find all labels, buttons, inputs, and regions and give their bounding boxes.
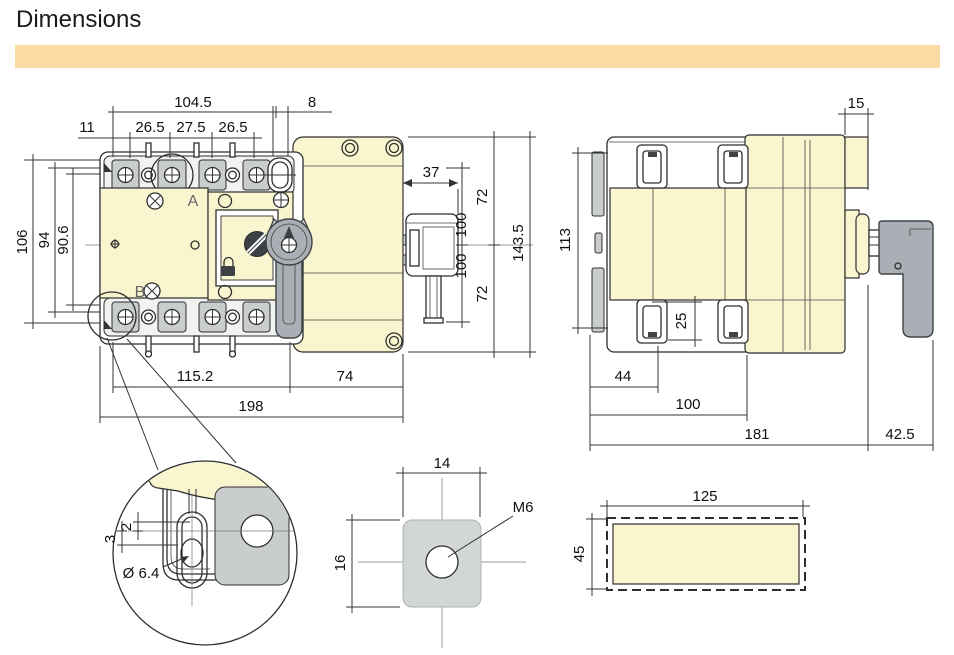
svg-text:100: 100 bbox=[675, 396, 700, 413]
side-band bbox=[610, 188, 746, 300]
terminal-b-label: B bbox=[135, 284, 146, 301]
front-plate: A B bbox=[100, 188, 208, 301]
svg-text:27.5: 27.5 bbox=[176, 119, 205, 136]
svg-text:Ø 6.4: Ø 6.4 bbox=[123, 565, 160, 582]
svg-text:37: 37 bbox=[423, 164, 440, 181]
svg-text:26.5: 26.5 bbox=[218, 119, 247, 136]
svg-text:104.5: 104.5 bbox=[174, 94, 212, 111]
switch-handle-side bbox=[869, 221, 933, 337]
dim-cover-height: 45 bbox=[571, 513, 606, 596]
svg-text:143.5: 143.5 bbox=[510, 224, 527, 262]
svg-text:25: 25 bbox=[673, 313, 690, 330]
svg-text:74: 74 bbox=[337, 368, 354, 385]
svg-text:45: 45 bbox=[571, 546, 588, 563]
svg-text:16: 16 bbox=[332, 555, 349, 572]
svg-text:M6: M6 bbox=[513, 499, 534, 516]
dim-front-left: 106 94 90.6 bbox=[14, 154, 100, 329]
cover-plate bbox=[613, 524, 799, 584]
aux-contact-block bbox=[403, 214, 458, 323]
svg-text:14: 14 bbox=[434, 455, 451, 472]
svg-text:8: 8 bbox=[308, 94, 316, 111]
svg-text:94: 94 bbox=[36, 232, 53, 249]
terminal-a-label: A bbox=[188, 193, 199, 210]
svg-text:44: 44 bbox=[615, 368, 632, 385]
svg-text:26.5: 26.5 bbox=[135, 119, 164, 136]
svg-text:90.6: 90.6 bbox=[55, 225, 72, 254]
svg-text:100: 100 bbox=[453, 253, 470, 278]
side-body bbox=[745, 135, 869, 353]
detail-view: 2 3 Ø 6.4 bbox=[102, 452, 310, 645]
svg-text:115.2: 115.2 bbox=[177, 368, 213, 385]
side-view: 15 113 25 44 bbox=[557, 95, 933, 451]
svg-text:3: 3 bbox=[102, 535, 119, 543]
svg-text:72: 72 bbox=[474, 189, 491, 206]
svg-text:72: 72 bbox=[474, 286, 491, 303]
dim-nut-width: 14 bbox=[396, 455, 487, 517]
svg-text:113: 113 bbox=[557, 228, 574, 252]
dimensions-drawing: A B bbox=[0, 0, 954, 655]
nut-hole bbox=[426, 546, 458, 578]
din-rail-clips bbox=[592, 152, 604, 332]
dim-cover-width: 125 bbox=[600, 488, 810, 517]
svg-text:11: 11 bbox=[79, 119, 95, 136]
dim-front-aux-width: 37 bbox=[403, 164, 458, 213]
cover-view: 125 45 bbox=[571, 488, 810, 596]
svg-text:42.5: 42.5 bbox=[885, 426, 914, 443]
svg-text:181: 181 bbox=[744, 426, 769, 443]
svg-text:15: 15 bbox=[848, 95, 865, 112]
svg-text:100: 100 bbox=[453, 212, 470, 237]
svg-text:2: 2 bbox=[118, 523, 135, 531]
nut-view: 14 16 M6 bbox=[332, 455, 533, 648]
front-view: A B bbox=[14, 94, 536, 470]
svg-text:198: 198 bbox=[238, 398, 263, 415]
svg-text:106: 106 bbox=[14, 229, 31, 254]
svg-text:125: 125 bbox=[692, 488, 717, 505]
dim-nut-height: 16 bbox=[332, 514, 400, 613]
